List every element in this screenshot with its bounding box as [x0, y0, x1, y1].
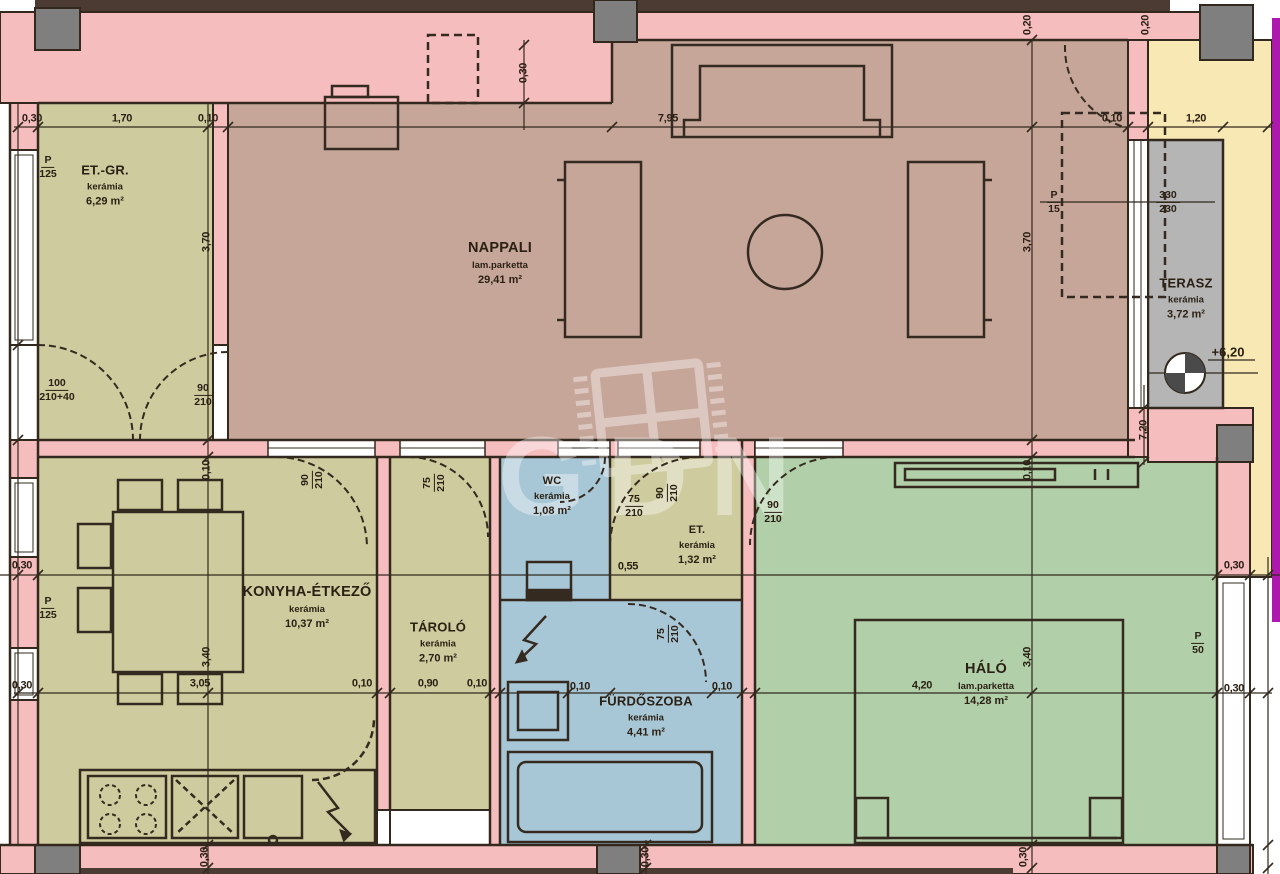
window-left-3: [10, 648, 38, 700]
room-label-halo: HÁLÓ lam.parketta 14,28 m²: [958, 661, 1014, 707]
dimension-label: 0,20: [1023, 15, 1034, 35]
door-size-label: P50: [1189, 630, 1207, 656]
room-area: 3,72 m²: [1159, 309, 1212, 321]
dimension-label: 1,70: [112, 114, 132, 125]
dimension-label: 0,10: [467, 679, 487, 690]
room-label-wc: WC kerámia 1,08 m²: [533, 475, 571, 517]
room-area: 2,70 m²: [410, 653, 466, 665]
room-name: FÜRDŐSZOBA: [599, 694, 693, 709]
floor-nappali: [228, 103, 1128, 440]
dimension-label: 4,20: [912, 681, 932, 692]
window-left-2: [10, 478, 38, 557]
door-size-label: P15: [1045, 189, 1063, 215]
room-material: lam.parketta: [958, 681, 1014, 692]
room-label-furdoszoba: FÜRDŐSZOBA kerámia 4,41 m²: [599, 694, 693, 739]
dimension-label: 0,20: [1141, 15, 1152, 35]
door-size-label: 330230: [1156, 189, 1180, 215]
dimension-label: 0,30: [22, 114, 42, 125]
dimension-label: 0,10: [202, 460, 213, 480]
dimension-label: 3,40: [202, 647, 213, 667]
door-size-label: 90210: [761, 499, 785, 525]
dimension-label: 0,30: [519, 63, 530, 83]
tarolo-niche: [390, 810, 490, 845]
dimension-label: 0,10: [1023, 460, 1034, 480]
door-size-label: 100210+40: [36, 377, 77, 403]
room-name: TERASZ: [1159, 276, 1212, 291]
dimension-label: 0,30: [641, 847, 652, 867]
dimension-label: 0,30: [200, 847, 211, 867]
door-size-label: 90210: [191, 382, 215, 408]
room-area: 1,08 m²: [533, 505, 571, 517]
dimension-label: 3,70: [202, 232, 213, 252]
edge-strip: [1272, 18, 1280, 622]
room-name: KONYHA-ÉTKEZŐ: [242, 584, 371, 600]
dimension-label: 0,55: [618, 562, 638, 573]
door-size-label: 90210: [654, 481, 680, 505]
room-material: kerámia: [81, 182, 129, 193]
room-name: NAPPALI: [468, 240, 532, 256]
room-name: WC: [533, 475, 571, 487]
window-halo-right: [1217, 577, 1250, 845]
room-name: ET.: [678, 524, 716, 536]
floor-nappali-upper: [612, 40, 1128, 105]
room-label-nappali: NAPPALI lam.parketta 29,41 m²: [468, 240, 532, 286]
door-size-label: P125: [36, 154, 60, 180]
room-area: 29,41 m²: [468, 274, 532, 286]
room-material: kerámia: [410, 639, 466, 650]
bottom-edge-wall: [80, 868, 1013, 874]
dimension-label: 0,10: [712, 682, 732, 693]
room-material: lam.parketta: [468, 260, 532, 271]
door-size-label: 75210: [622, 493, 646, 519]
room-label-et-gr: ET.-GR. kerámia 6,29 m²: [81, 163, 129, 208]
room-material: kerámia: [242, 604, 371, 615]
room-material: kerámia: [678, 540, 716, 551]
room-material: kerámia: [1159, 295, 1212, 306]
dimension-label: 3,70: [1023, 232, 1034, 252]
room-area: 6,29 m²: [81, 196, 129, 208]
dimension-label: 1,20: [1186, 114, 1206, 125]
dimension-label: 7,95: [658, 114, 678, 125]
terrace-door-window: [1128, 140, 1148, 408]
dimension-label: 0,90: [418, 679, 438, 690]
dimension-label: 3,40: [1023, 647, 1034, 667]
dimension-label: 0,30: [1019, 847, 1030, 867]
dimension-label: 0,30: [1224, 561, 1244, 572]
room-label-konyha: KONYHA-ÉTKEZŐ kerámia 10,37 m²: [242, 584, 371, 630]
room-material: kerámia: [533, 491, 571, 502]
room-area: 1,32 m²: [678, 554, 716, 566]
floor-halo: [755, 457, 1217, 845]
dimension-label: 0,10: [352, 679, 372, 690]
door-size-label: 75210: [655, 622, 681, 646]
dimension-label: 0,30: [12, 681, 32, 692]
room-area: 14,28 m²: [958, 695, 1014, 707]
elevation-value: +6,20: [1212, 345, 1245, 360]
room-name: ET.-GR.: [81, 163, 129, 178]
floor-plan-drawing: GDN: [0, 0, 1280, 874]
room-label-terasz: TERASZ kerámia 3,72 m²: [1159, 276, 1212, 321]
room-name: TÁROLÓ: [410, 620, 466, 635]
dimension-label: 0,30: [12, 561, 32, 572]
dimension-label: 0,10: [570, 682, 590, 693]
elevation-marker: [1165, 353, 1205, 393]
entry-door-opening: [10, 345, 38, 440]
room-name: HÁLÓ: [958, 661, 1014, 677]
door-size-label: 90210: [299, 468, 325, 492]
room-material: kerámia: [599, 713, 693, 724]
window-left-1: [10, 150, 38, 345]
room-area: 4,41 m²: [599, 727, 693, 739]
room-label-tarolo: TÁROLÓ kerámia 2,70 m²: [410, 620, 466, 665]
dimension-label: 3,05: [190, 679, 210, 690]
dimension-label: 7,20: [1139, 420, 1150, 440]
door-size-label: 75210: [421, 471, 447, 495]
dimension-label: 0,10: [1102, 114, 1122, 125]
dimension-label: 0,30: [1224, 684, 1244, 695]
room-label-et: ET. kerámia 1,32 m²: [678, 524, 716, 566]
floor-plan: GDN: [0, 0, 1280, 874]
room-area: 10,37 m²: [242, 618, 371, 630]
door-size-label: P125: [36, 595, 60, 621]
dimension-label: 0,10: [198, 114, 218, 125]
